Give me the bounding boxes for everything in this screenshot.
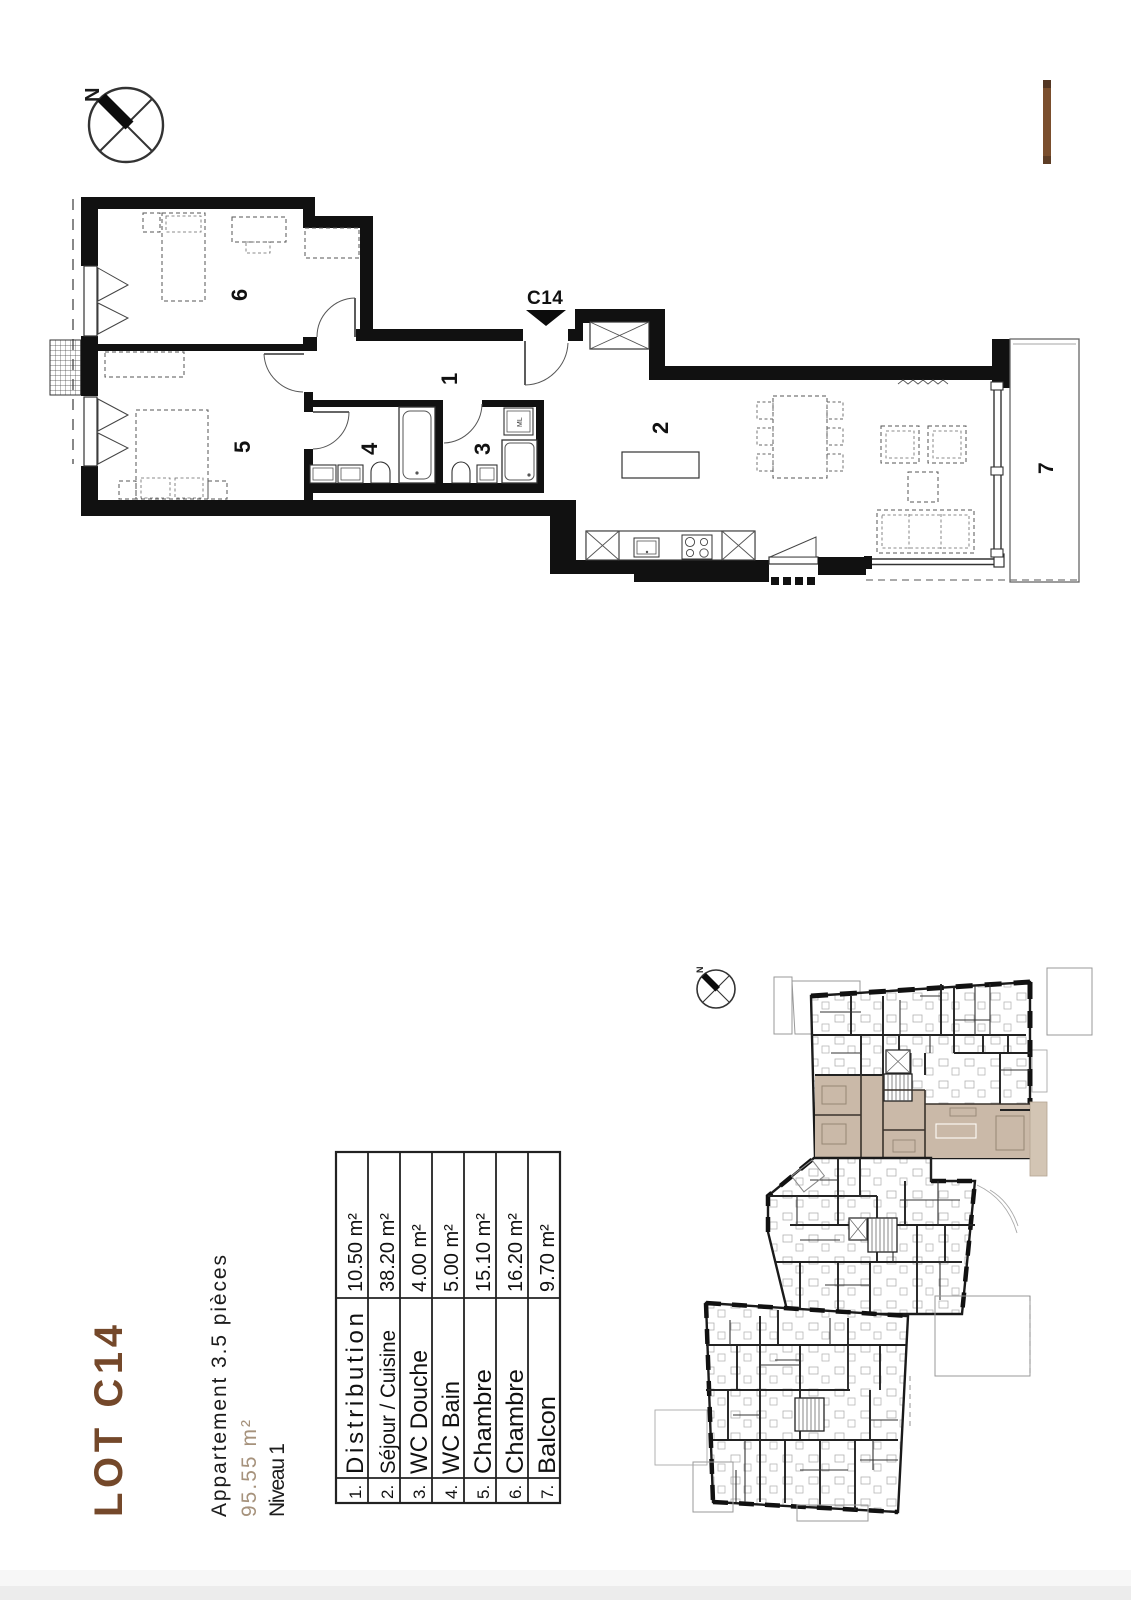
svg-text:WC Bain: WC Bain [438,1381,465,1474]
svg-text:2: 2 [648,422,673,434]
svg-text:3.: 3. [410,1485,429,1499]
svg-text:1.: 1. [346,1485,365,1499]
svg-text:Chambre: Chambre [470,1369,497,1474]
svg-text:N: N [82,88,104,102]
svg-text:2.: 2. [378,1485,397,1499]
svg-text:Distribution: Distribution [342,1313,369,1474]
svg-text:95.55 m²: 95.55 m² [238,1420,261,1517]
svg-text:5.00 m²: 5.00 m² [441,1224,463,1292]
svg-text:LOT C14: LOT C14 [87,1324,131,1517]
svg-text:9.70 m²: 9.70 m² [537,1224,559,1292]
svg-text:15.10 m²: 15.10 m² [473,1213,495,1292]
svg-text:16.20 m²: 16.20 m² [505,1213,527,1292]
svg-text:WC Douche: WC Douche [406,1350,433,1474]
svg-text:Appartement 3.5 pièces: Appartement 3.5 pièces [208,1255,231,1517]
svg-text:Séjour / Cuisine: Séjour / Cuisine [377,1330,400,1474]
svg-text:Balcon: Balcon [534,1396,561,1474]
svg-text:ML: ML [517,417,524,427]
svg-text:C14: C14 [527,288,563,309]
svg-text:5: 5 [230,441,255,453]
svg-text:7: 7 [1035,462,1058,474]
svg-text:3: 3 [470,443,495,455]
svg-text:10.50 m²: 10.50 m² [345,1213,367,1292]
svg-text:38.20 m²: 38.20 m² [377,1213,399,1292]
svg-text:1: 1 [437,373,462,385]
svg-text:5.: 5. [474,1485,493,1499]
svg-text:4: 4 [357,442,382,455]
svg-text:Chambre: Chambre [502,1369,529,1474]
svg-text:6: 6 [227,289,252,301]
svg-text:Niveau 1: Niveau 1 [266,1443,289,1517]
svg-text:7.: 7. [538,1485,557,1499]
svg-text:4.00 m²: 4.00 m² [409,1224,431,1292]
svg-text:4.: 4. [442,1485,461,1499]
svg-text:N: N [695,967,705,974]
svg-text:6.: 6. [506,1485,525,1499]
